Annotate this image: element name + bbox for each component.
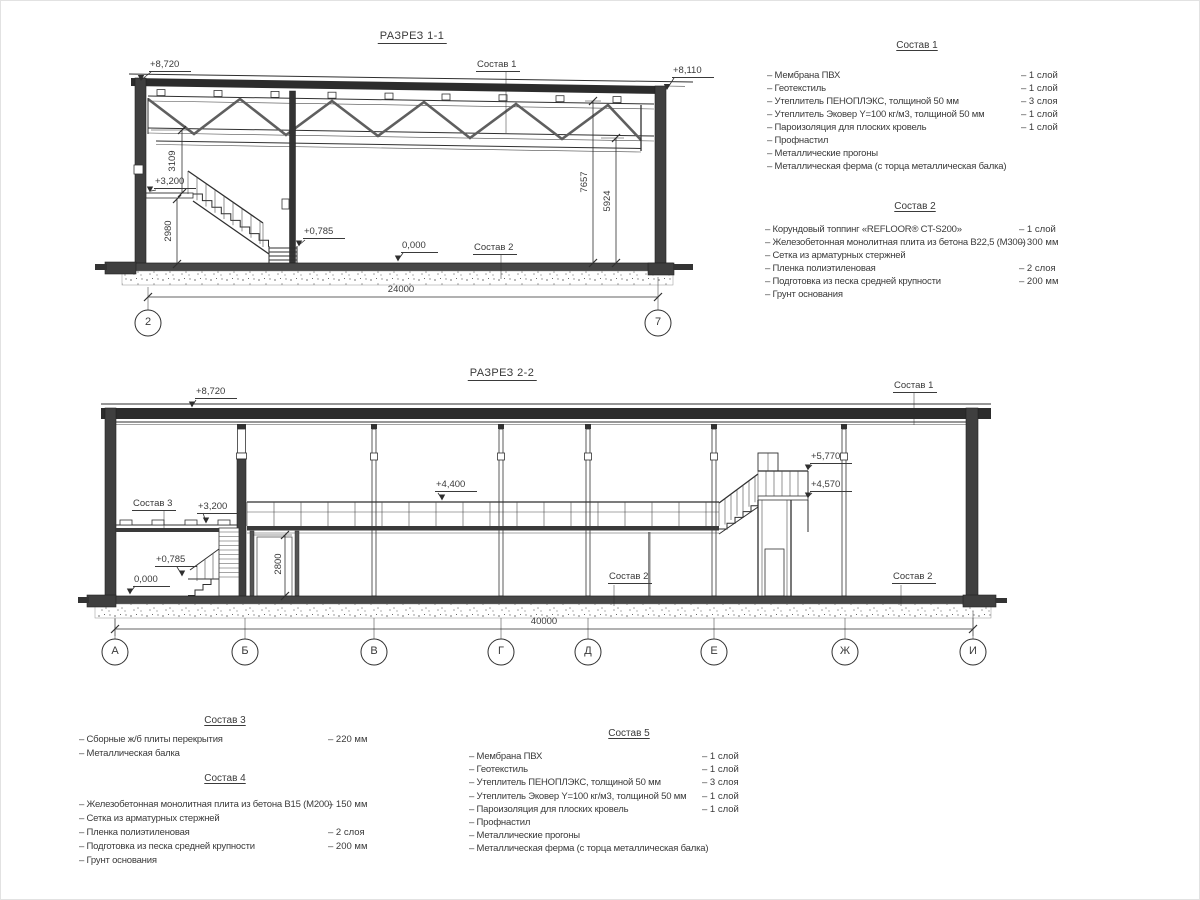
material-name: – Металлическая балка [79, 748, 180, 759]
material-row: – Мембрана ПВХ – 1 слой [767, 70, 1087, 83]
composition-title: Состав 3 [79, 715, 371, 726]
material-name: – Металлические прогоны [767, 148, 878, 159]
axis-bubble-label: Д [573, 645, 603, 661]
material-name: – Сборные ж/б плиты перекрытия [79, 734, 223, 745]
material-name: – Профнастил [469, 817, 530, 828]
composition-title: Состав 2 [765, 201, 1065, 212]
material-row: – Утеплитель ПЕНОПЛЭКС, толщиной 50 мм –… [767, 96, 1087, 109]
material-row: – Профнастил [767, 135, 1087, 148]
material-row: – Корундовый топпинг «REFLOOR® CT-S200» … [765, 224, 1085, 237]
section-1-1-title: РАЗРЕЗ 1-1 [378, 30, 447, 44]
material-row: – Металлическая ферма (с торца металличе… [767, 161, 1087, 174]
material-value: – 1 слой [702, 791, 739, 802]
material-value: – 1 слой [1021, 83, 1058, 94]
material-row: – Железобетонная монолитная плита из бет… [79, 799, 389, 813]
dimension-text: 2800 [273, 544, 287, 584]
material-row: – Утеплитель Эковер Y=100 кг/м3, толщино… [767, 109, 1087, 122]
material-name: – Сетка из арматурных стержней [765, 250, 905, 261]
material-row: – Грунт основания [79, 855, 389, 869]
elevation-mark: +4,400 [435, 479, 477, 492]
axis-bubble-label: 2 [133, 316, 163, 332]
material-row: – Геотекстиль – 1 слой [469, 764, 799, 777]
material-name: – Подготовка из песка средней крупности [79, 841, 255, 852]
material-name: – Металлическая ферма (с торца металличе… [767, 161, 1006, 172]
material-name: – Пароизоляция для плоских кровель [767, 122, 926, 133]
material-row: – Сетка из арматурных стержней [765, 250, 1085, 263]
material-row: – Пароизоляция для плоских кровель – 1 с… [767, 122, 1087, 135]
elevation-mark: +8,110 [672, 65, 714, 78]
material-name: – Пленка полиэтиленовая [765, 263, 876, 274]
material-name: – Пароизоляция для плоских кровель [469, 804, 628, 815]
elevation-mark: +8,720 [149, 59, 191, 72]
dimension-text: 3109 [167, 141, 181, 181]
composition-table-1: Состав 1 – Мембрана ПВХ – 1 слой – Геоте… [767, 40, 1087, 174]
material-row: – Металлические прогоны [767, 148, 1087, 161]
material-value: – 2 слоя [328, 827, 365, 838]
material-value: – 2 слоя [1019, 263, 1056, 274]
material-name: – Грунт основания [765, 289, 843, 300]
axis-bubble-label: А [100, 645, 130, 661]
material-value: – 3 слоя [1021, 96, 1058, 107]
axis-bubble-label: Г [486, 645, 516, 661]
composition-table-5: Состав 5 – Мембрана ПВХ – 1 слой – Геоте… [469, 728, 799, 857]
material-row: – Железобетонная монолитная плита из бет… [765, 237, 1085, 250]
material-value: – 1 слой [702, 751, 739, 762]
composition-ref: Состав 3 [132, 498, 176, 511]
material-name: – Железобетонная монолитная плита из бет… [765, 237, 1026, 248]
material-row: – Металлические прогоны [469, 830, 799, 843]
material-name: – Корундовый топпинг «REFLOOR® CT-S200» [765, 224, 962, 235]
section-2-2-title: РАЗРЕЗ 2-2 [468, 367, 537, 381]
material-name: – Металлические прогоны [469, 830, 580, 841]
elevation-mark: +0,785 [155, 554, 197, 567]
material-value: – 150 мм [328, 799, 367, 810]
material-row: – Сетка из арматурных стержней [79, 813, 389, 827]
composition-ref: Состав 1 [893, 380, 937, 393]
material-value: – 1 слой [1019, 224, 1056, 235]
material-value: – 1 слой [1021, 122, 1058, 133]
material-name: – Металлическая ферма (с торца металличе… [469, 843, 708, 854]
material-value: – 200 мм [328, 841, 367, 852]
composition-ref: Состав 2 [473, 242, 517, 255]
material-value: – 1 слой [702, 764, 739, 775]
dimension-text: 40000 [514, 616, 574, 627]
material-value: – 1 слой [702, 804, 739, 815]
material-name: – Геотекстиль [767, 83, 826, 94]
material-row: – Металлическая балка [79, 748, 389, 762]
material-row: – Сборные ж/б плиты перекрытия – 220 мм [79, 734, 389, 748]
composition-title: Состав 5 [469, 728, 789, 739]
axis-bubble-label: Б [230, 645, 260, 661]
axis-bubble-label: И [958, 645, 988, 661]
composition-title: Состав 1 [767, 40, 1067, 51]
material-row: – Утеплитель Эковер Y=100 кг/м3, толщино… [469, 791, 799, 804]
material-name: – Утеплитель ПЕНОПЛЭКС, толщиной 50 мм [767, 96, 959, 107]
material-row: – Подготовка из песка средней крупности … [79, 841, 389, 855]
material-name: – Геотекстиль [469, 764, 528, 775]
material-value: – 1 слой [1021, 70, 1058, 81]
elevation-mark: +8,720 [195, 386, 237, 399]
elevation-mark: +5,770 [810, 451, 852, 464]
material-name: – Грунт основания [79, 855, 157, 866]
material-row: – Утеплитель ПЕНОПЛЭКС, толщиной 50 мм –… [469, 777, 799, 790]
material-row: – Геотекстиль – 1 слой [767, 83, 1087, 96]
material-value: – 200 мм [1019, 276, 1058, 287]
composition-table-3: Состав 3 – Сборные ж/б плиты перекрытия … [79, 715, 389, 761]
material-row: – Профнастил [469, 817, 799, 830]
elevation-mark: +3,200 [197, 501, 239, 514]
material-name: – Утеплитель Эковер Y=100 кг/м3, толщино… [767, 109, 984, 120]
material-name: – Мембрана ПВХ [469, 751, 542, 762]
elevation-mark: 0,000 [133, 574, 170, 587]
material-row: – Пленка полиэтиленовая – 2 слоя [79, 827, 389, 841]
material-value: – 220 мм [328, 734, 367, 745]
elevation-mark: +0,785 [303, 226, 345, 239]
elevation-mark: +4,570 [810, 479, 852, 492]
material-value: – 1 слой [1021, 109, 1058, 120]
material-row: – Мембрана ПВХ – 1 слой [469, 751, 799, 764]
dimension-text: 7657 [579, 162, 593, 202]
material-name: – Сетка из арматурных стержней [79, 813, 219, 824]
composition-table-4: Состав 4 – Железобетонная монолитная пли… [79, 773, 389, 869]
dimension-text: 24000 [371, 284, 431, 295]
material-value: – 3 слоя [702, 777, 739, 788]
composition-table-2: Состав 2 – Корундовый топпинг «REFLOOR® … [765, 201, 1085, 302]
axis-bubble-label: 7 [643, 316, 673, 332]
elevation-mark: 0,000 [401, 240, 438, 253]
material-name: – Утеплитель Эковер Y=100 кг/м3, толщино… [469, 791, 686, 802]
composition-ref: Состав 2 [892, 571, 936, 584]
dimension-text: 2980 [163, 211, 177, 251]
material-row: – Грунт основания [765, 289, 1085, 302]
axis-bubble-label: Е [699, 645, 729, 661]
material-row: – Пленка полиэтиленовая – 2 слоя [765, 263, 1085, 276]
dimension-text: 5924 [602, 181, 616, 221]
material-name: – Пленка полиэтиленовая [79, 827, 190, 838]
material-name: – Профнастил [767, 135, 828, 146]
material-row: – Подготовка из песка средней крупности … [765, 276, 1085, 289]
axis-bubble-label: Ж [830, 645, 860, 661]
composition-title: Состав 4 [79, 773, 371, 784]
material-name: – Утеплитель ПЕНОПЛЭКС, толщиной 50 мм [469, 777, 661, 788]
material-name: – Мембрана ПВХ [767, 70, 840, 81]
material-row: – Пароизоляция для плоских кровель – 1 с… [469, 804, 799, 817]
axis-bubble-label: В [359, 645, 389, 661]
material-name: – Подготовка из песка средней крупности [765, 276, 941, 287]
material-name: – Железобетонная монолитная плита из бет… [79, 799, 332, 810]
composition-ref: Состав 1 [476, 59, 520, 72]
material-value: – 300 мм [1019, 237, 1058, 248]
drawing-sheet: .w{fill:#3f3f3f;stroke:#222;stroke-width… [0, 0, 1200, 900]
composition-ref: Состав 2 [608, 571, 652, 584]
material-row: – Металлическая ферма (с торца металличе… [469, 843, 799, 856]
